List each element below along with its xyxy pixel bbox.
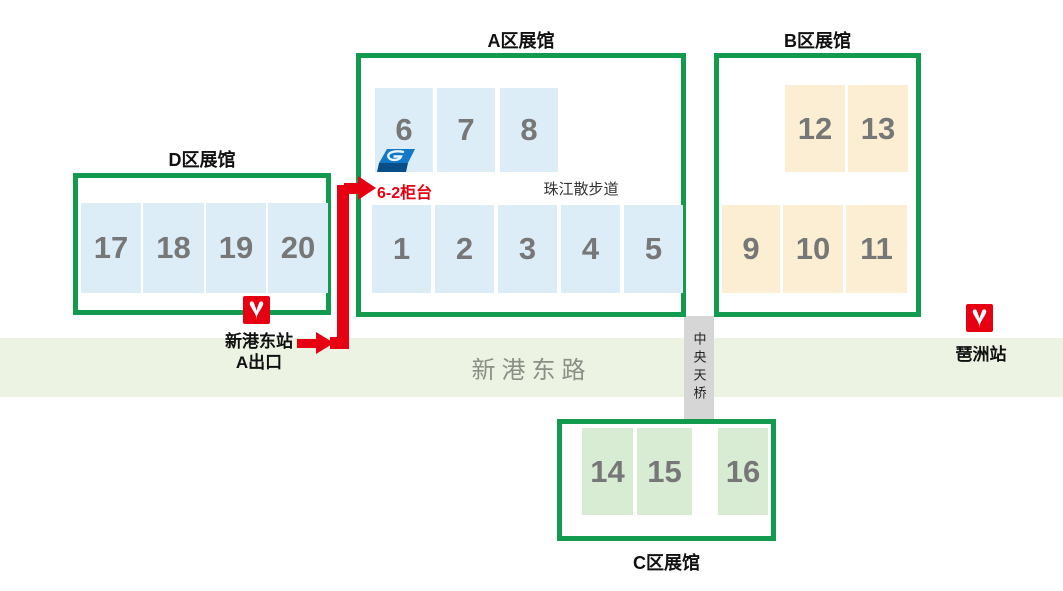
hall-cell: 17 [81, 203, 141, 293]
central-bridge: 中央天桥 [684, 316, 714, 419]
hall-cell: 18 [143, 203, 204, 293]
hall-cell: 10 [783, 205, 843, 293]
hall-cell: 15 [637, 428, 692, 515]
hall-cell: 13 [848, 85, 908, 172]
zone-b-box: 12 13 9 10 11 [714, 53, 921, 317]
hall-cell: 9 [722, 205, 780, 293]
route-end-arrow-icon [358, 176, 376, 200]
zone-a-title: A区展馆 [356, 27, 686, 53]
route-top-segment [344, 183, 359, 194]
metro-station-icon [243, 296, 270, 324]
pazhou-station-label: 琶洲站 [931, 340, 1031, 365]
road-band: 新港东路 [0, 338, 1063, 397]
xingangdong-station-label: 新港东站 A出口 [209, 331, 309, 373]
hall-cell: 2 [435, 205, 494, 293]
promenade-label: 珠江散步道 [511, 178, 651, 199]
station-exit: A出口 [209, 352, 309, 373]
counter-6-2-label: 6-2柜台 [377, 179, 432, 203]
hall-cell: 16 [718, 428, 768, 515]
hall-cell: 7 [437, 88, 495, 172]
exhibition-counter-logo-icon [377, 148, 417, 181]
hall-cell: 5 [624, 205, 683, 293]
hall-cell: 12 [785, 85, 845, 172]
exhibition-venue-map: 新港东路 中央天桥 A区展馆 B区展馆 D区展馆 C区展馆 6 7 8 珠江散步… [0, 0, 1063, 591]
hall-cell: 14 [582, 428, 633, 515]
hall-cell: 8 [500, 88, 558, 172]
zone-c-title: C区展馆 [557, 549, 776, 575]
hall-cell: 1 [372, 205, 431, 293]
metro-station-icon [966, 304, 993, 332]
zone-d-box: 17 18 19 20 [73, 173, 331, 315]
hall-cell: 20 [268, 203, 328, 293]
road-label: 新港东路 [472, 350, 592, 385]
zone-d-title: D区展馆 [73, 146, 331, 172]
hall-cell: 4 [561, 205, 620, 293]
zone-b-title: B区展馆 [714, 27, 921, 53]
central-bridge-label: 中央天桥 [690, 332, 709, 404]
station-name: 新港东站 [209, 331, 309, 352]
hall-cell: 3 [498, 205, 557, 293]
route-vertical-segment [337, 185, 349, 349]
hall-cell: 19 [206, 203, 266, 293]
hall-cell: 11 [846, 205, 907, 293]
zone-c-box: 14 15 16 [557, 419, 776, 541]
